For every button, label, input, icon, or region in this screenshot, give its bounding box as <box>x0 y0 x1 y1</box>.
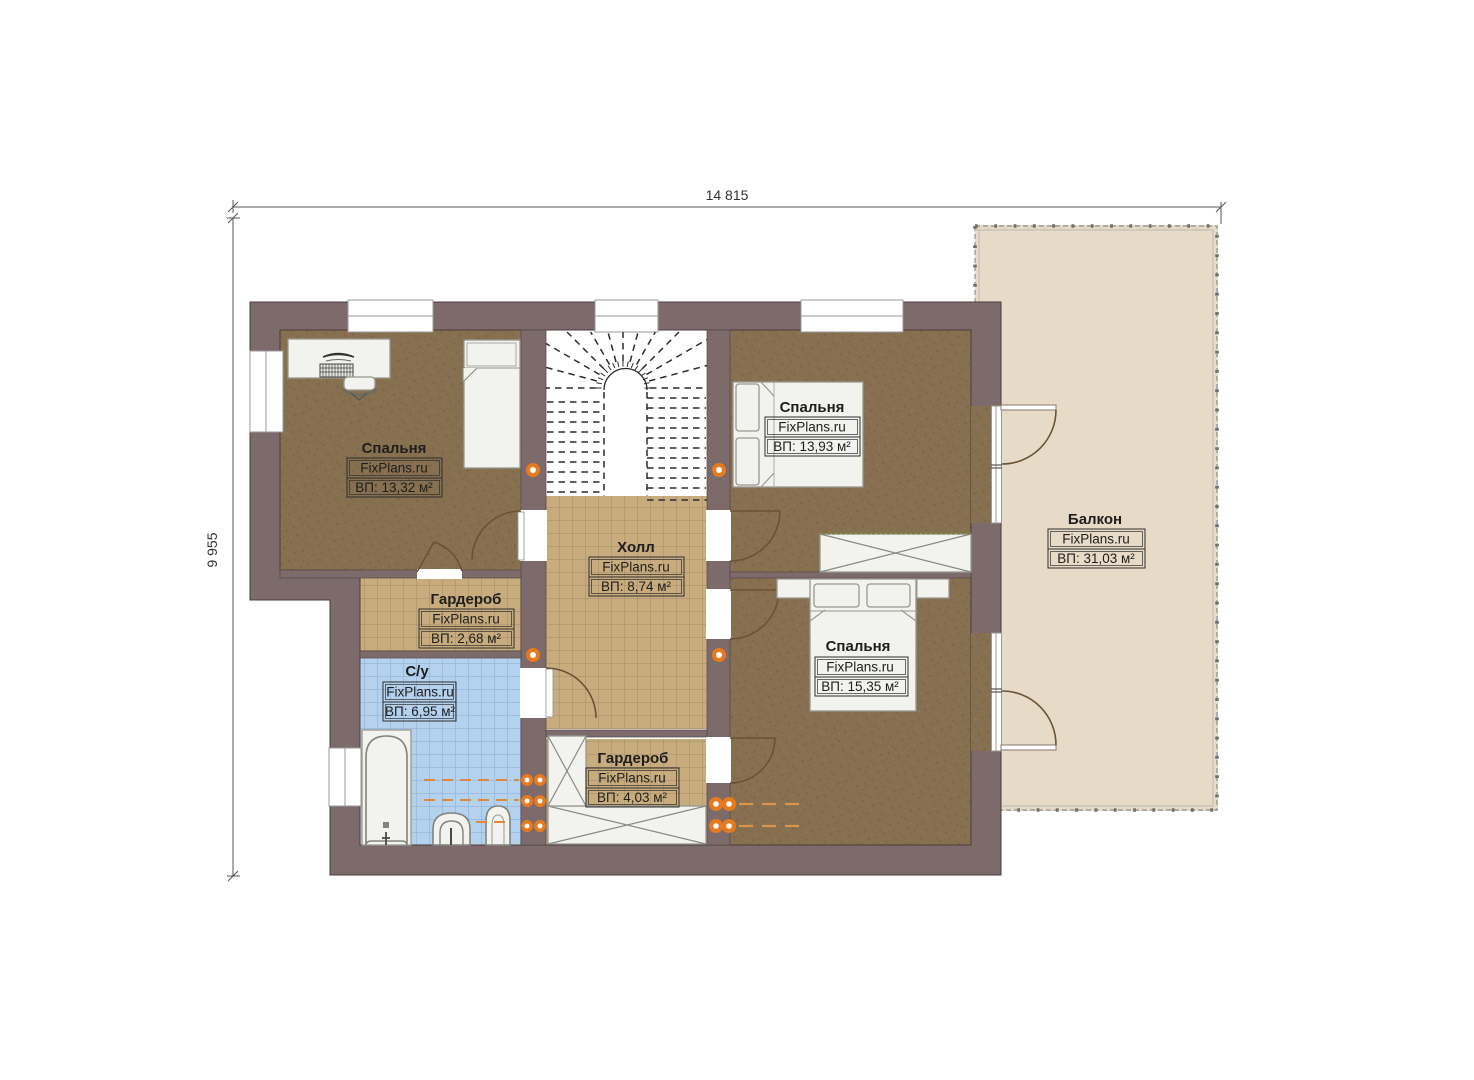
svg-text:Спальня: Спальня <box>780 399 845 416</box>
svg-text:FixPlans.ru: FixPlans.ru <box>826 660 894 675</box>
svg-text:ВП: 13,93 м²: ВП: 13,93 м² <box>773 439 851 454</box>
svg-text:Гардероб: Гардероб <box>598 750 669 767</box>
svg-text:FixPlans.ru: FixPlans.ru <box>432 612 500 627</box>
svg-text:FixPlans.ru: FixPlans.ru <box>360 461 428 476</box>
svg-text:ВП: 31,03 м²: ВП: 31,03 м² <box>1057 551 1135 566</box>
svg-text:Холл: Холл <box>617 539 655 556</box>
svg-text:ВП: 15,35 м²: ВП: 15,35 м² <box>821 679 899 694</box>
svg-text:14 815: 14 815 <box>706 187 749 203</box>
svg-text:Спальня: Спальня <box>826 638 891 655</box>
svg-text:FixPlans.ru: FixPlans.ru <box>1062 532 1130 547</box>
svg-text:FixPlans.ru: FixPlans.ru <box>386 685 454 700</box>
svg-text:ВП: 8,74 м²: ВП: 8,74 м² <box>601 579 672 594</box>
svg-text:FixPlans.ru: FixPlans.ru <box>778 420 846 435</box>
svg-text:Балкон: Балкон <box>1068 511 1122 528</box>
svg-text:С/у: С/у <box>405 663 429 680</box>
svg-text:ВП: 13,32 м²: ВП: 13,32 м² <box>355 480 433 495</box>
svg-text:ВП: 4,03 м²: ВП: 4,03 м² <box>597 790 668 805</box>
svg-text:FixPlans.ru: FixPlans.ru <box>598 771 666 786</box>
svg-text:ВП: 2,68 м²: ВП: 2,68 м² <box>431 631 502 646</box>
svg-text:FixPlans.ru: FixPlans.ru <box>602 560 670 575</box>
svg-text:Гардероб: Гардероб <box>431 591 502 608</box>
svg-text:9 955: 9 955 <box>204 532 220 567</box>
svg-text:ВП: 6,95 м²: ВП: 6,95 м² <box>385 704 456 719</box>
svg-text:Спальня: Спальня <box>362 440 427 457</box>
